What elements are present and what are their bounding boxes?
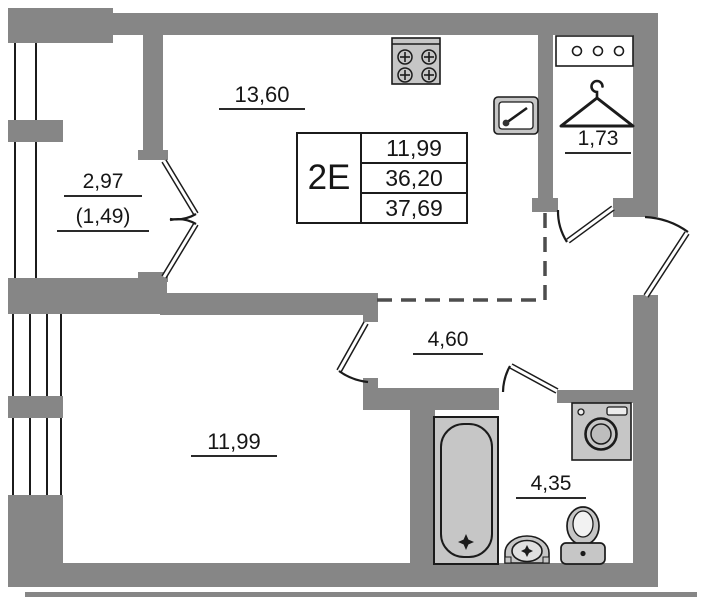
hanger-icon (561, 81, 633, 126)
walls (8, 8, 697, 597)
unit-overall-area: 37,69 (362, 192, 466, 222)
kitchen-zone-dashed-line (377, 213, 545, 300)
toilet-icon (561, 507, 605, 564)
bathtub-icon (434, 417, 498, 564)
stove-icon (392, 38, 440, 84)
unit-total-area: 36,20 (362, 162, 466, 192)
washing-machine-icon (572, 403, 631, 460)
entrance-door-icon (645, 217, 688, 296)
unit-areas-column: 11,99 36,20 37,69 (362, 134, 466, 222)
unit-living-area: 11,99 (362, 134, 466, 162)
plan-graphics (0, 0, 706, 600)
label-kitchen-living-area: 13,60 (219, 82, 305, 110)
label-balcony-reduced-area: (1,49) (57, 205, 149, 232)
balcony-corner-wall (8, 8, 113, 43)
label-bathroom-area: 4,35 (516, 472, 586, 499)
wardrobe-door-icon (558, 208, 613, 242)
unit-info-table: 2Е 11,99 36,20 37,69 (296, 132, 468, 224)
floor-plan: 13,60 2,97 (1,49) 1,73 4,60 11,99 4,35 2… (0, 0, 706, 600)
bathroom-door-icon (503, 366, 557, 392)
kitchen-sink-icon (494, 97, 538, 134)
window-glazing (13, 43, 61, 495)
label-hallway-area: 4,60 (413, 328, 483, 355)
unit-type-label: 2Е (298, 134, 362, 222)
bedroom-door-icon (339, 323, 368, 382)
balcony-french-door-icon (164, 161, 196, 277)
label-bedroom-area: 11,99 (191, 429, 277, 457)
label-balcony-area: 2,97 (64, 170, 142, 197)
pedestal-sink-icon (505, 536, 549, 563)
top-wall (45, 13, 658, 35)
shelf-hooks-icon (556, 36, 633, 66)
label-wardrobe-area: 1,73 (565, 127, 631, 154)
